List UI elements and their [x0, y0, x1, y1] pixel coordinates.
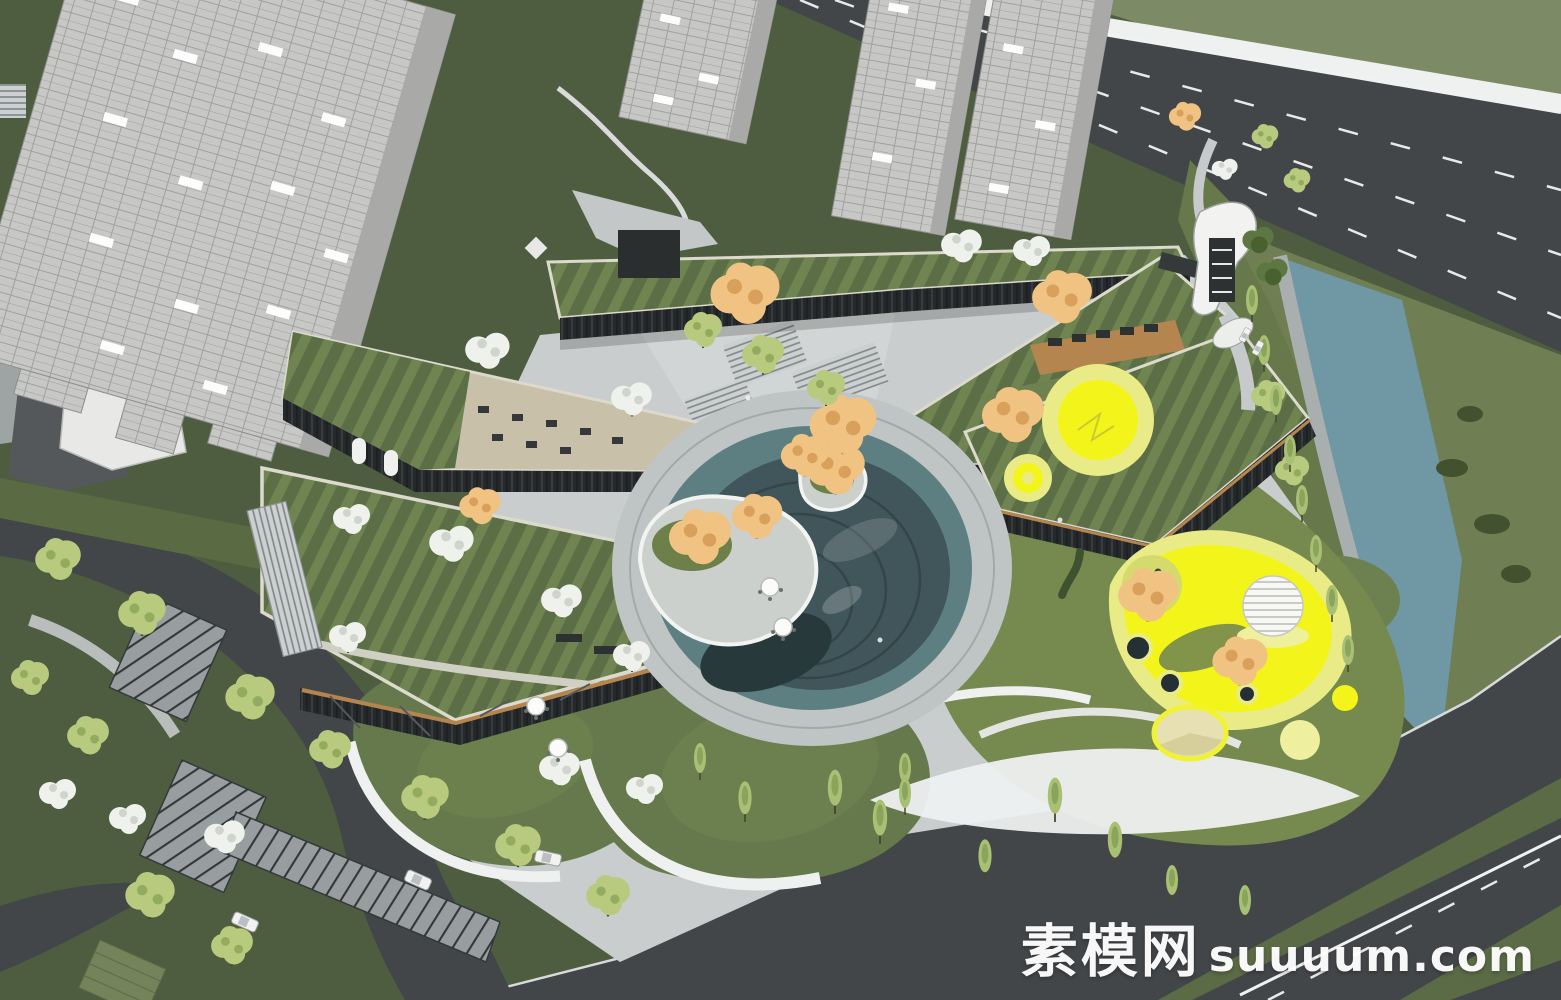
watermark-cjk: 素模网: [1021, 906, 1201, 988]
watermark-latin: suuuum.com: [1209, 931, 1535, 982]
trampoline: [1238, 685, 1256, 703]
watermark: 素模网suuuum.com: [1021, 906, 1535, 988]
architectural-rendering: 素模网suuuum.com: [0, 0, 1561, 1000]
arch-accent: [384, 450, 398, 476]
bank-shrub: [1501, 565, 1531, 583]
play-circle-small: [1332, 685, 1358, 711]
site-plan-svg: [0, 0, 1561, 1000]
bank-shrub: [1436, 459, 1468, 477]
arch-accent: [352, 438, 366, 464]
tower-pair-north: [831, 0, 1116, 257]
rooftop-box: [618, 230, 680, 278]
play-circle-small: [1280, 720, 1320, 760]
trampoline: [1125, 635, 1151, 661]
bank-shrub: [1474, 514, 1510, 534]
play-rings: [1022, 472, 1034, 484]
hill-stair: [0, 84, 26, 118]
bank-shrub: [1457, 406, 1483, 422]
roof-benches: [556, 634, 582, 642]
trampoline: [1159, 672, 1181, 694]
